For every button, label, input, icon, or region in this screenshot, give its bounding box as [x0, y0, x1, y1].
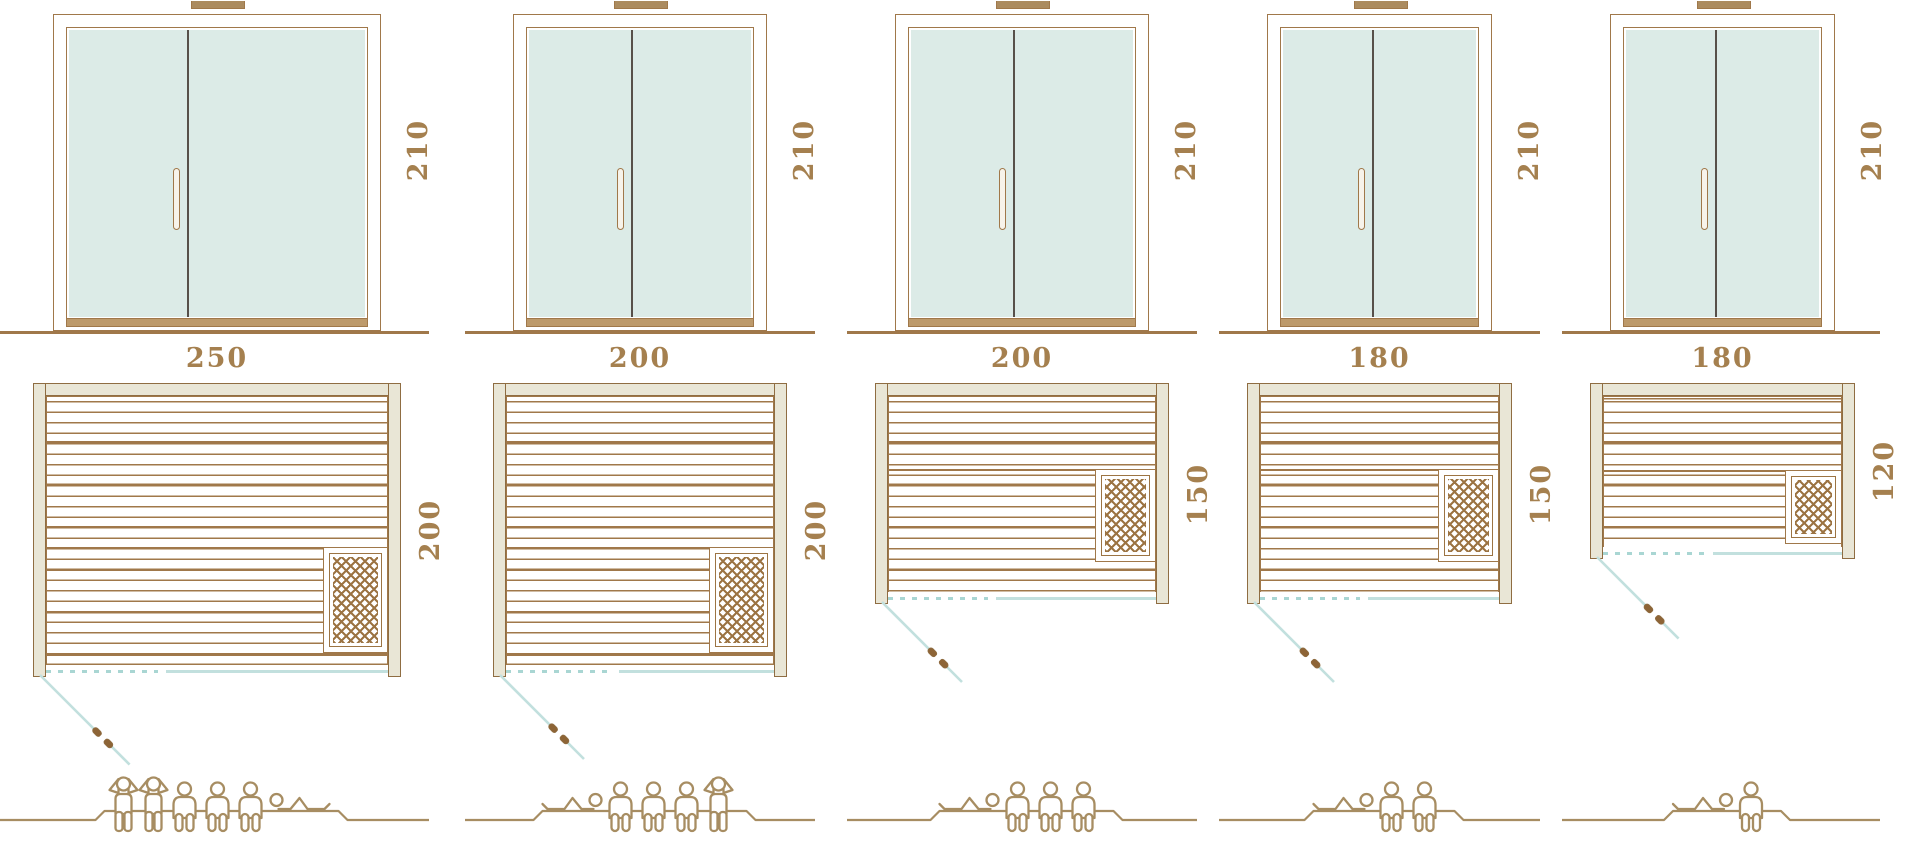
- floor-plan: [493, 383, 787, 677]
- heater-bay: [1438, 469, 1498, 562]
- ground-line: [847, 331, 1197, 334]
- depth-dimension-label: 200: [803, 485, 831, 575]
- glass-panel: [529, 30, 751, 317]
- plan-wall-top: [1247, 383, 1512, 396]
- plan-interior-planks: [1260, 396, 1499, 592]
- heater-stones-lattice: [1105, 479, 1146, 552]
- depth-dimension-label: 150: [1185, 449, 1213, 539]
- roof-vent: [1697, 1, 1751, 9]
- heater-box: [715, 553, 768, 647]
- width-dimension-label: 200: [493, 345, 787, 373]
- plan-interior-planks: [46, 396, 388, 665]
- sauna-front-elevation: [53, 14, 381, 331]
- sitting-person-icon: [1040, 783, 1062, 832]
- sitting-person-icon: [174, 783, 196, 832]
- depth-dimension-label: 200: [417, 485, 445, 575]
- door-swing-arc: [1247, 600, 1397, 730]
- sauna-5-column: 210 180 120: [1590, 0, 1855, 856]
- door-handle: [173, 168, 180, 230]
- roof-vent: [996, 1, 1050, 9]
- lying-person-icon: [543, 794, 602, 809]
- plan-wall-right: [774, 383, 787, 677]
- depth-dimension-label: 120: [1871, 426, 1899, 516]
- door-handle-plan-icon: [1643, 603, 1666, 626]
- plan-wall-right: [1499, 383, 1512, 604]
- heater-box: [1101, 475, 1150, 556]
- plan-wall-right: [1842, 383, 1855, 559]
- sauna-front-elevation: [1610, 14, 1835, 331]
- ground-line: [0, 331, 429, 334]
- sitting-person-icon: [240, 783, 262, 832]
- door-handle-plan-icon: [927, 647, 950, 670]
- heater-box: [329, 553, 382, 647]
- heater-box: [1791, 476, 1836, 538]
- plan-wall-top: [875, 383, 1169, 396]
- door-threshold: [527, 318, 753, 326]
- sitting-person-icon: [1740, 783, 1762, 832]
- door-handle: [1701, 168, 1708, 230]
- standing-person-icon: [110, 778, 138, 832]
- glass-door-unit: [66, 27, 368, 327]
- door-divider-line: [1372, 30, 1374, 317]
- door-swing-line: [1254, 602, 1334, 682]
- standing-person-icon: [140, 778, 168, 832]
- door-swing-line: [500, 675, 584, 759]
- floor-plan: [33, 383, 401, 677]
- lying-person-icon: [1673, 794, 1732, 809]
- door-divider-line: [1715, 30, 1717, 317]
- sauna-size-comparison-diagram: 210 250 200: [0, 0, 1920, 856]
- sauna-3-column: 210 200 150: [875, 0, 1169, 856]
- plan-wall-left: [33, 383, 46, 677]
- door-threshold: [67, 318, 367, 326]
- roof-vent: [614, 1, 668, 9]
- lying-person-icon: [271, 794, 330, 809]
- plan-interior-planks: [888, 396, 1156, 592]
- sitting-person-icon: [643, 783, 665, 832]
- floor-plan: [1247, 383, 1512, 604]
- standing-person-icon: [705, 778, 733, 832]
- glass-door-unit: [908, 27, 1136, 327]
- plan-wall-left: [875, 383, 888, 604]
- ground-line: [1562, 331, 1880, 334]
- door-handle-plan-icon: [1299, 647, 1322, 670]
- door-swing-line: [40, 675, 130, 765]
- front-glass-wall-line: [166, 670, 388, 673]
- plan-interior-planks: [1603, 396, 1842, 547]
- door-swing-line: [882, 602, 962, 682]
- floor-plan: [875, 383, 1169, 604]
- plan-wall-top: [33, 383, 401, 396]
- glass-door-unit: [1623, 27, 1822, 327]
- glass-panel: [69, 30, 365, 317]
- plan-wall-left: [1247, 383, 1260, 604]
- ground-line: [465, 331, 815, 334]
- sitting-person-icon: [207, 783, 229, 832]
- capacity-figures: [0, 756, 429, 856]
- height-dimension-label: 210: [1516, 105, 1544, 195]
- sitting-person-icon: [610, 783, 632, 832]
- plan-wall-left: [1590, 383, 1603, 559]
- plan-wall-top: [1590, 383, 1855, 396]
- glass-door-unit: [1280, 27, 1479, 327]
- capacity-figures: [847, 756, 1197, 856]
- sauna-4-column: 210 180 150: [1247, 0, 1512, 856]
- glass-panel: [1283, 30, 1476, 317]
- height-dimension-label: 210: [1173, 105, 1201, 195]
- depth-dimension-label: 150: [1528, 449, 1556, 539]
- lying-person-icon: [940, 794, 999, 809]
- door-swing-arc: [1590, 555, 1740, 685]
- door-handle-plan-icon: [91, 726, 114, 749]
- sitting-person-icon: [676, 783, 698, 832]
- sitting-person-icon: [1414, 783, 1436, 832]
- width-dimension-label: 180: [1590, 345, 1855, 373]
- door-handle: [1358, 168, 1365, 230]
- plan-wall-right: [388, 383, 401, 677]
- sitting-person-icon: [1007, 783, 1029, 832]
- floor-plan: [1590, 383, 1855, 559]
- door-threshold: [1281, 318, 1478, 326]
- glass-panel: [911, 30, 1133, 317]
- glass-panel: [1626, 30, 1819, 317]
- heater-stones-lattice: [333, 557, 378, 643]
- capacity-figures: [1219, 756, 1540, 856]
- ground-line: [1219, 331, 1540, 334]
- door-swing-line: [1597, 557, 1679, 639]
- sauna-front-elevation: [895, 14, 1149, 331]
- width-dimension-label: 250: [33, 345, 401, 373]
- heater-bay: [323, 547, 387, 653]
- plan-wall-top: [493, 383, 787, 396]
- capacity-figures: [465, 756, 815, 856]
- heater-bay: [1785, 470, 1841, 544]
- door-handle: [617, 168, 624, 230]
- sitting-person-icon: [1073, 783, 1095, 832]
- bench-profile-line: [465, 811, 815, 820]
- sauna-front-elevation: [1267, 14, 1492, 331]
- sitting-person-icon: [1381, 783, 1403, 832]
- heater-box: [1444, 475, 1493, 556]
- heater-bay: [1095, 469, 1155, 562]
- door-swing-arc: [875, 600, 1025, 730]
- lying-person-icon: [1314, 794, 1373, 809]
- door-threshold: [1624, 318, 1821, 326]
- sauna-front-elevation: [513, 14, 767, 331]
- door-handle-plan-icon: [547, 722, 570, 745]
- door-threshold: [909, 318, 1135, 326]
- height-dimension-label: 210: [405, 105, 433, 195]
- door-handle: [999, 168, 1006, 230]
- glass-door-unit: [526, 27, 754, 327]
- plan-wall-left: [493, 383, 506, 677]
- height-dimension-label: 210: [791, 105, 819, 195]
- sauna-2-column: 210 200 200: [493, 0, 787, 856]
- roof-vent: [1354, 1, 1408, 9]
- roof-vent: [191, 1, 245, 9]
- heater-stones-lattice: [1795, 480, 1832, 534]
- heater-stones-lattice: [1448, 479, 1489, 552]
- width-dimension-label: 180: [1247, 345, 1512, 373]
- heater-bay: [709, 547, 773, 653]
- capacity-figures: [1562, 756, 1880, 856]
- sauna-1-column: 210 250 200: [33, 0, 401, 856]
- width-dimension-label: 200: [875, 345, 1169, 373]
- door-divider-line: [631, 30, 633, 317]
- plan-wall-right: [1156, 383, 1169, 604]
- heater-stones-lattice: [719, 557, 764, 643]
- plan-interior-planks: [506, 396, 774, 665]
- door-divider-line: [187, 30, 189, 317]
- bench-profile-line: [1562, 811, 1880, 820]
- door-divider-line: [1013, 30, 1015, 317]
- height-dimension-label: 210: [1859, 105, 1887, 195]
